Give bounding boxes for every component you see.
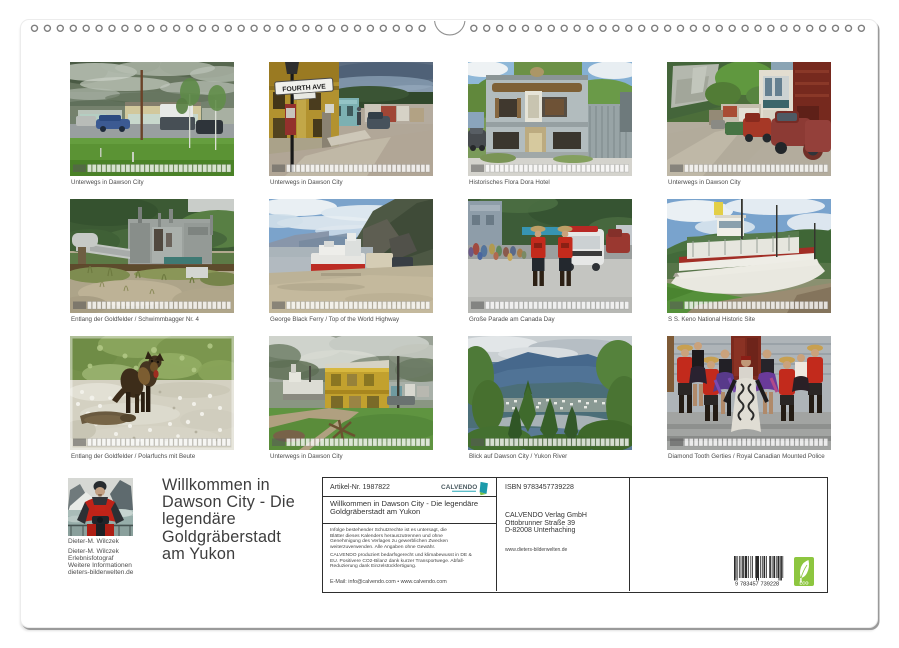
- svg-text:739228: 739228: [761, 582, 780, 587]
- svg-text:783457: 783457: [740, 582, 759, 587]
- svg-text:9: 9: [735, 582, 738, 587]
- svg-text:ECO: ECO: [799, 581, 809, 586]
- svg-text:CALVENDO: CALVENDO: [441, 484, 477, 491]
